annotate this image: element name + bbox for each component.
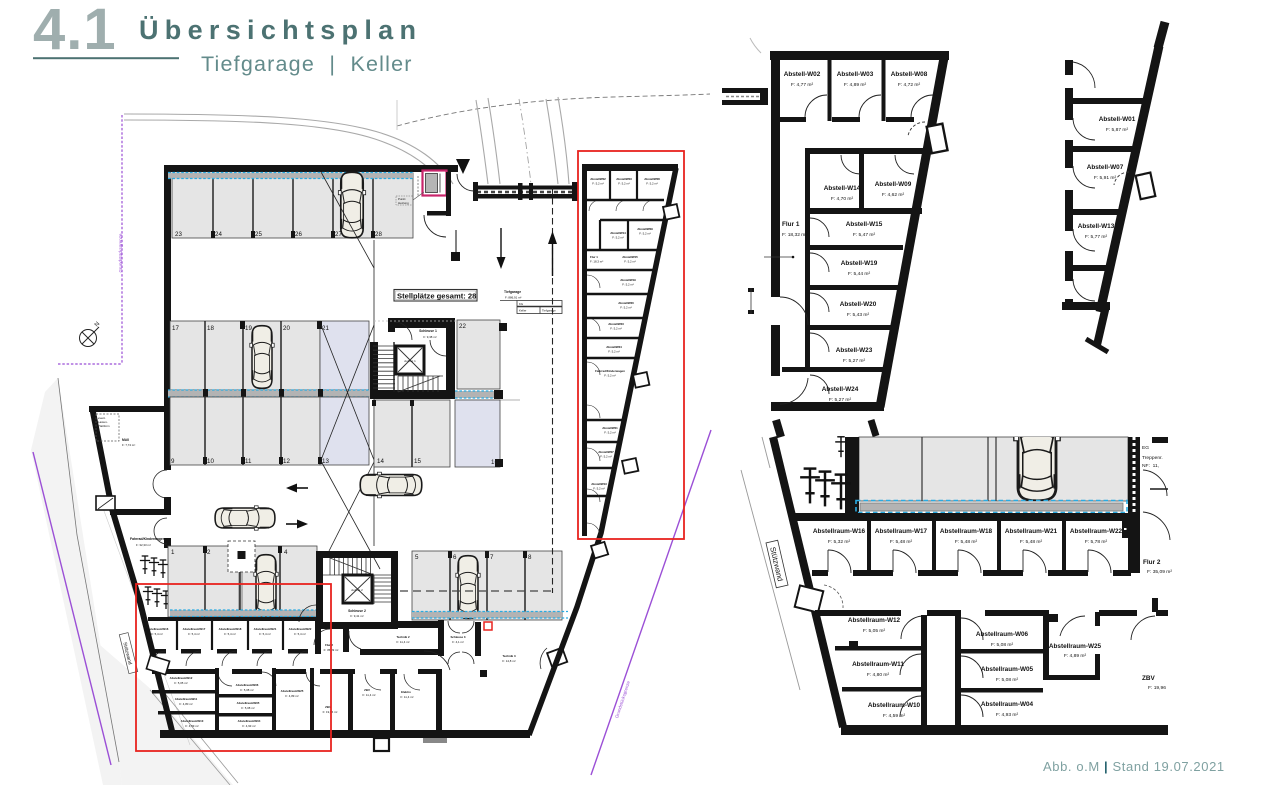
svg-text:ZBV: ZBV xyxy=(325,705,331,709)
svg-text:28: 28 xyxy=(375,231,382,238)
svg-text:AbstellW07: AbstellW07 xyxy=(598,450,614,454)
svg-text:Flur 2: Flur 2 xyxy=(325,643,333,647)
svg-text:AbstellW09: AbstellW09 xyxy=(637,227,653,231)
svg-text:1: 1 xyxy=(171,549,175,556)
svg-text:F: 4,80 m²: F: 4,80 m² xyxy=(179,702,192,706)
svg-text:F: 4,80 m²: F: 4,80 m² xyxy=(867,672,890,678)
svg-text:Abstellraum-W05: Abstellraum-W05 xyxy=(981,666,1034,673)
svg-text:F: 7,74 m²: F: 7,74 m² xyxy=(122,443,135,447)
svg-text:Abstellraum-W10: Abstellraum-W10 xyxy=(868,702,921,709)
svg-text:F: 5,48 m²: F: 5,48 m² xyxy=(1020,539,1043,545)
svg-text:Abstell-W15: Abstell-W15 xyxy=(846,221,883,228)
svg-text:5: 5 xyxy=(415,554,419,561)
svg-text:AbstellW14: AbstellW14 xyxy=(610,231,626,235)
svg-text:Abstellraum-W12: Abstellraum-W12 xyxy=(848,617,901,624)
svg-text:Abstell-W14: Abstell-W14 xyxy=(824,185,861,192)
svg-text:F: 14,8 m²: F: 14,8 m² xyxy=(502,659,515,663)
svg-text:AbstellW08: AbstellW08 xyxy=(644,177,660,181)
svg-text:22: 22 xyxy=(459,323,466,330)
svg-text:F: 5,87 m²: F: 5,87 m² xyxy=(1106,127,1129,133)
svg-text:Stellplätze gesamt: 28: Stellplätze gesamt: 28 xyxy=(397,292,476,301)
svg-text:F: 4,89 m²: F: 4,89 m² xyxy=(844,82,867,88)
svg-text:Abstellraum-W04: Abstellraum-W04 xyxy=(981,701,1034,708)
svg-text:AbstellraumW25: AbstellraumW25 xyxy=(281,689,304,693)
svg-text:F: 4,1 m²: F: 4,1 m² xyxy=(452,640,464,644)
svg-text:F: 5,08 m²: F: 5,08 m² xyxy=(240,688,253,692)
svg-text:Schleuse 1: Schleuse 1 xyxy=(419,329,437,333)
svg-text:18: 18 xyxy=(207,325,214,332)
svg-text:Flur 1: Flur 1 xyxy=(782,221,800,228)
svg-text:AbstellraumW22: AbstellraumW22 xyxy=(289,627,312,631)
svg-text:F: 4,77 m²: F: 4,77 m² xyxy=(791,82,814,88)
svg-text:F: 11,4 m²: F: 11,4 m² xyxy=(397,640,410,644)
svg-text:F: 4,59 m²: F: 4,59 m² xyxy=(883,713,906,719)
svg-text:F: 5,4 m²: F: 5,4 m² xyxy=(188,632,200,636)
svg-text:AbstellraumW12: AbstellraumW12 xyxy=(170,676,193,680)
svg-text:F: 5,2 m²: F: 5,2 m² xyxy=(639,232,651,236)
svg-text:F: 5,2 m²: F: 5,2 m² xyxy=(593,487,605,491)
svg-text:F: 4,89 m²: F: 4,89 m² xyxy=(285,694,298,698)
svg-text:17: 17 xyxy=(172,325,179,332)
svg-text:Fahrrad/Kinderwagen: Fahrrad/Kinderwagen xyxy=(130,537,165,541)
svg-text:F: 5,2 m²: F: 5,2 m² xyxy=(604,374,616,378)
svg-text:F: 5,4 m²: F: 5,4 m² xyxy=(294,632,306,636)
svg-text:Abstellraum-W18: Abstellraum-W18 xyxy=(940,528,993,535)
svg-text:F: 5,2 m²: F: 5,2 m² xyxy=(604,431,616,435)
svg-text:4.1: 4.1 xyxy=(33,0,117,62)
svg-text:11: 11 xyxy=(245,458,252,465)
svg-text:F: 5,4 m²: F: 5,4 m² xyxy=(224,632,236,636)
svg-text:F: 19,96 m²: F: 19,96 m² xyxy=(323,710,338,714)
svg-text:Aufzug 1: Aufzug 1 xyxy=(404,359,416,363)
svg-text:Abstellraum-W25: Abstellraum-W25 xyxy=(1049,643,1102,650)
svg-text:Abstell-W09: Abstell-W09 xyxy=(875,181,912,188)
svg-text:F: 886,91 m²: F: 886,91 m² xyxy=(505,296,521,300)
svg-text:AbstellW01: AbstellW01 xyxy=(602,426,618,430)
svg-text:Abstell-W01: Abstell-W01 xyxy=(1099,116,1136,123)
svg-text:AbstellW15: AbstellW15 xyxy=(622,255,638,259)
svg-text:ZBV: ZBV xyxy=(1142,675,1156,682)
svg-text:NF: 11,: NF: 11, xyxy=(1142,463,1159,469)
svg-text:F: 5,2 m²: F: 5,2 m² xyxy=(612,236,624,240)
svg-text:AbstellW20: AbstellW20 xyxy=(618,301,634,305)
svg-text:23: 23 xyxy=(175,231,182,238)
svg-text:AbstellraumW06: AbstellraumW06 xyxy=(236,683,259,687)
svg-text:F: 5,2 m²: F: 5,2 m² xyxy=(624,260,636,264)
svg-text:Flur 2: Flur 2 xyxy=(1143,559,1161,566)
svg-text:F: 4,70 m²: F: 4,70 m² xyxy=(831,196,854,202)
svg-text:AbstellW24: AbstellW24 xyxy=(606,345,622,349)
svg-text:Abstell-W24: Abstell-W24 xyxy=(822,386,859,393)
svg-text:F: 5,48 m²: F: 5,48 m² xyxy=(890,539,913,545)
svg-text:Abstellraum-W17: Abstellraum-W17 xyxy=(875,528,928,535)
svg-text:Flur 1: Flur 1 xyxy=(590,255,598,259)
svg-text:AbstellW19: AbstellW19 xyxy=(620,278,636,282)
svg-text:19: 19 xyxy=(245,325,252,332)
svg-text:24: 24 xyxy=(215,231,222,238)
svg-text:F: 5,47 m²: F: 5,47 m² xyxy=(853,232,876,238)
svg-text:Heizung: Heizung xyxy=(398,201,409,205)
svg-text:Abstell-W23: Abstell-W23 xyxy=(836,347,873,354)
svg-text:AbstellraumW05: AbstellraumW05 xyxy=(237,701,260,705)
svg-text:Abstell-W07: Abstell-W07 xyxy=(1087,164,1124,171)
svg-text:Technik 3: Technik 3 xyxy=(502,654,516,658)
svg-text:Schleuse 3: Schleuse 3 xyxy=(450,635,465,639)
svg-text:F: 5,2 m²: F: 5,2 m² xyxy=(622,283,634,287)
svg-text:F: 5,43 m²: F: 5,43 m² xyxy=(847,312,870,318)
svg-text:F: 4,93 m²: F: 4,93 m² xyxy=(242,724,255,728)
svg-text:F: 5,2 m²: F: 5,2 m² xyxy=(646,182,658,186)
svg-text:Abstell-W08: Abstell-W08 xyxy=(891,71,928,78)
svg-text:12: 12 xyxy=(283,458,290,465)
svg-text:F: 5,08 m²: F: 5,08 m² xyxy=(996,677,1019,683)
svg-text:2: 2 xyxy=(207,549,211,556)
svg-text:F: 5,2 m²: F: 5,2 m² xyxy=(620,306,632,310)
svg-text:AbstellraumW21: AbstellraumW21 xyxy=(254,627,277,631)
svg-text:EG: EG xyxy=(1142,445,1149,451)
svg-text:8: 8 xyxy=(528,554,532,561)
svg-text:F: 4,93 m²: F: 4,93 m² xyxy=(996,712,1019,718)
svg-text:Abstellraum-W16: Abstellraum-W16 xyxy=(813,528,866,535)
svg-text:Elektro: Elektro xyxy=(401,690,411,694)
svg-text:25: 25 xyxy=(255,231,262,238)
svg-text:F: 11,4 m²: F: 11,4 m² xyxy=(363,693,376,697)
svg-text:F: 5,48 m²: F: 5,48 m² xyxy=(955,539,978,545)
svg-text:F: 18,32 m²: F: 18,32 m² xyxy=(782,232,807,238)
svg-text:AbstellraumW18: AbstellraumW18 xyxy=(219,627,242,631)
svg-text:Abstellraum-W06: Abstellraum-W06 xyxy=(976,631,1029,638)
svg-text:ZBV: ZBV xyxy=(364,688,370,692)
svg-text:AbstellW23: AbstellW23 xyxy=(608,322,624,326)
svg-text:Abstellraum-W21: Abstellraum-W21 xyxy=(1005,528,1058,535)
svg-text:Treppenr.: Treppenr. xyxy=(1142,455,1163,461)
svg-text:Abstell-W20: Abstell-W20 xyxy=(840,301,877,308)
svg-text:F: 5,2 m²: F: 5,2 m² xyxy=(610,327,622,331)
svg-text:F: 9,38 m²: F: 9,38 m² xyxy=(423,335,436,339)
svg-text:F: 5,08 m²: F: 5,08 m² xyxy=(241,706,254,710)
svg-text:F: 11,4 m²: F: 11,4 m² xyxy=(401,695,414,699)
svg-text:AbstellraumW04: AbstellraumW04 xyxy=(238,719,261,723)
svg-text:9: 9 xyxy=(171,458,175,465)
svg-text:Abstellraum-W22: Abstellraum-W22 xyxy=(1070,528,1123,535)
svg-text:F: 5,2 m²: F: 5,2 m² xyxy=(618,182,630,186)
svg-text:F: 5,05 m²: F: 5,05 m² xyxy=(174,681,187,685)
svg-text:13: 13 xyxy=(322,458,329,465)
svg-text:F: 5,05 m²: F: 5,05 m² xyxy=(863,628,886,634)
svg-text:Tiefgarage | Keller: Tiefgarage | Keller xyxy=(201,52,413,76)
svg-text:F: 35,09 m²: F: 35,09 m² xyxy=(1147,569,1172,575)
svg-text:14: 14 xyxy=(377,458,384,465)
svg-text:F: 32,33 m²: F: 32,33 m² xyxy=(136,543,151,547)
svg-text:Abstellraum-W11: Abstellraum-W11 xyxy=(852,661,904,668)
svg-text:20: 20 xyxy=(283,325,290,332)
svg-text:Übersichtsplan: Übersichtsplan xyxy=(139,15,422,45)
svg-text:Fahrrad/Kinderwagen: Fahrrad/Kinderwagen xyxy=(595,369,625,373)
svg-text:AbstellW02: AbstellW02 xyxy=(590,177,606,181)
svg-text:F: 5,27 m²: F: 5,27 m² xyxy=(843,358,866,364)
svg-text:F: 19,96: F: 19,96 xyxy=(1148,685,1166,691)
svg-text:F: 5,32 m²: F: 5,32 m² xyxy=(828,539,851,545)
svg-text:Tiefgarage: Tiefgarage xyxy=(504,290,521,294)
svg-text:F: 5,27 m²: F: 5,27 m² xyxy=(829,397,852,403)
svg-text:F: 5,4 m²: F: 5,4 m² xyxy=(259,632,271,636)
svg-text:Schleuse 2: Schleuse 2 xyxy=(348,609,366,613)
svg-text:F: 5,77 m²: F: 5,77 m² xyxy=(1085,234,1108,240)
svg-text:AbstellW13: AbstellW13 xyxy=(591,482,607,486)
svg-text:4: 4 xyxy=(284,549,288,556)
svg-text:F: 5,08 m²: F: 5,08 m² xyxy=(991,642,1014,648)
svg-text:Abb. o.M | Stand 19.07.2021: Abb. o.M | Stand 19.07.2021 xyxy=(1043,759,1225,774)
svg-text:F: 18,3 m²: F: 18,3 m² xyxy=(590,260,603,264)
svg-text:Aufzug 2: Aufzug 2 xyxy=(351,588,363,592)
svg-text:26: 26 xyxy=(295,231,302,238)
svg-text:F: 5,4 m²: F: 5,4 m² xyxy=(151,632,163,636)
svg-text:7: 7 xyxy=(490,554,494,561)
svg-text:Müll: Müll xyxy=(122,438,129,442)
svg-text:F: 4,72 m²: F: 4,72 m² xyxy=(898,82,921,88)
svg-text:Technik 2: Technik 2 xyxy=(396,635,410,639)
svg-text:AbstellraumW17: AbstellraumW17 xyxy=(183,627,206,631)
svg-text:10: 10 xyxy=(207,458,214,465)
svg-text:F: 5,2 m²: F: 5,2 m² xyxy=(600,455,612,459)
svg-text:15: 15 xyxy=(414,458,421,465)
svg-text:Abstell-W03: Abstell-W03 xyxy=(837,71,874,78)
svg-text:F: 4,62 m²: F: 4,62 m² xyxy=(882,192,905,198)
svg-text:Abstell-W13: Abstell-W13 xyxy=(1078,223,1115,230)
svg-text:F: 5,91 m²: F: 5,91 m² xyxy=(1094,175,1117,181)
svg-text:AbstellraumW16: AbstellraumW16 xyxy=(146,627,169,631)
svg-text:AbstellW03: AbstellW03 xyxy=(616,177,632,181)
svg-text:Keller: Keller xyxy=(519,309,526,313)
svg-text:F: 5,44 m²: F: 5,44 m² xyxy=(848,271,871,277)
svg-text:Abstell-W02: Abstell-W02 xyxy=(784,71,821,78)
svg-text:Plattform: Plattform xyxy=(98,424,110,428)
svg-text:AbstellraumW11: AbstellraumW11 xyxy=(175,697,198,701)
svg-text:Abstell-W19: Abstell-W19 xyxy=(841,260,878,267)
svg-text:F: 9,41 m²: F: 9,41 m² xyxy=(350,614,363,618)
svg-text:F: 4,89 m²: F: 4,89 m² xyxy=(1064,653,1087,659)
svg-text:F: 4,59 m²: F: 4,59 m² xyxy=(185,724,198,728)
svg-text:6: 6 xyxy=(453,554,457,561)
svg-text:F: 5,2 m²: F: 5,2 m² xyxy=(592,182,604,186)
svg-text:F: 5,78 m²: F: 5,78 m² xyxy=(1085,539,1108,545)
svg-text:Grundstücksgrenze: Grundstücksgrenze xyxy=(118,233,123,273)
svg-text:Tiefgarage: Tiefgarage xyxy=(542,309,556,313)
svg-text:AbstellraumW10: AbstellraumW10 xyxy=(181,719,204,723)
svg-text:F: 5,2 m²: F: 5,2 m² xyxy=(608,350,620,354)
